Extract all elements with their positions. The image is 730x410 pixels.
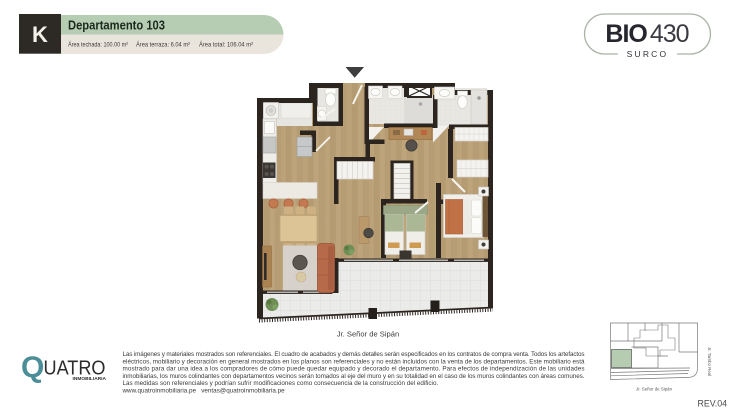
svg-text:Área techada: 100.00 m²: Área techada: 100.00 m² xyxy=(68,40,129,49)
svg-text:Área terraza: 6.04 m²: Área terraza: 6.04 m² xyxy=(136,40,191,49)
svg-text:Área total: 106.04 m²: Área total: 106.04 m² xyxy=(199,40,254,49)
svg-text:inmobiliarias, los muros colin: inmobiliarias, los muros colindantes con… xyxy=(123,373,585,380)
svg-text:Las medidas son referenciales: Las medidas son referenciales y podrían … xyxy=(123,380,439,387)
svg-text:INMOBILIARIA: INMOBILIARIA xyxy=(73,376,107,381)
svg-text:Departamento 103: Departamento 103 xyxy=(68,18,165,33)
svg-text:Jr. Señor de Sipán: Jr. Señor de Sipán xyxy=(337,330,399,339)
svg-text:Jr. Señor de Sipán: Jr. Señor de Sipán xyxy=(636,387,673,392)
svg-text:Q: Q xyxy=(21,351,44,384)
svg-text:Jr. Tambo Real: Jr. Tambo Real xyxy=(707,347,712,376)
svg-text:SURCO: SURCO xyxy=(627,49,669,59)
svg-text:www.quatroinmobiliaria.pe ve: www.quatroinmobiliaria.pe ventas@quatroi… xyxy=(122,388,286,395)
svg-text:eléctricos, mobiliario y decor: eléctricos, mobiliario y decoración en g… xyxy=(123,358,585,365)
svg-text:K: K xyxy=(32,22,48,47)
svg-text:mostrado para dar una idea a l: mostrado para dar una idea a los comprad… xyxy=(123,366,585,373)
svg-text:Las imágenes y materiales most: Las imágenes y materiales mostrados son … xyxy=(123,351,585,358)
svg-text:REV.04: REV.04 xyxy=(697,399,727,409)
